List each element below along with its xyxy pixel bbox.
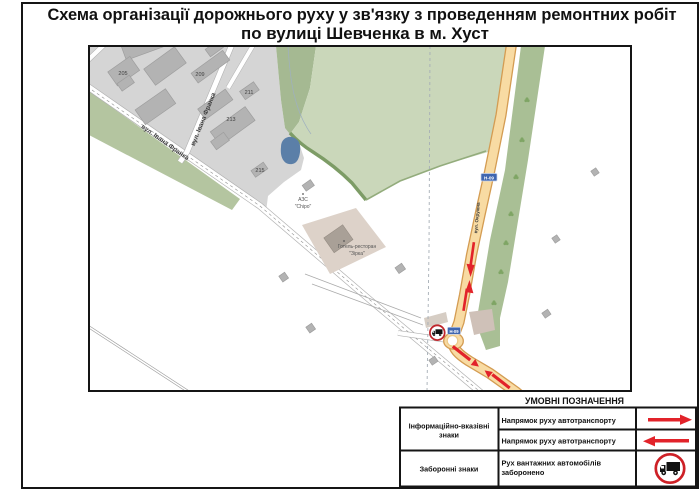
- svg-text:215: 215: [255, 168, 264, 174]
- svg-text:213: 213: [226, 117, 235, 123]
- svg-text:"Chipo": "Chipo": [295, 204, 312, 210]
- svg-text:Готель-ресторан: Готель-ресторан: [338, 244, 377, 250]
- svg-text:"Зірка": "Зірка": [349, 251, 365, 257]
- svg-text:Н-09: Н-09: [449, 329, 459, 334]
- svg-text:Інформаційно-вказівні: Інформаційно-вказівні: [409, 421, 490, 430]
- svg-text:Напрямок руху автотранспорту: Напрямок руху автотранспорту: [502, 437, 617, 446]
- svg-text:211: 211: [245, 90, 254, 96]
- svg-text:205: 205: [118, 71, 127, 77]
- svg-text:209: 209: [195, 72, 204, 78]
- svg-text:АЗС: АЗС: [298, 197, 308, 203]
- svg-text:знаки: знаки: [439, 431, 459, 440]
- svg-text:заборонено: заборонено: [502, 468, 545, 477]
- svg-text:Напрямок руху автотранспорту: Напрямок руху автотранспорту: [502, 416, 617, 425]
- svg-text:Заборонні знаки: Заборонні знаки: [420, 465, 479, 474]
- svg-text:Н-09: Н-09: [484, 175, 494, 180]
- svg-text:Рух вантажних автомобілів: Рух вантажних автомобілів: [502, 459, 602, 468]
